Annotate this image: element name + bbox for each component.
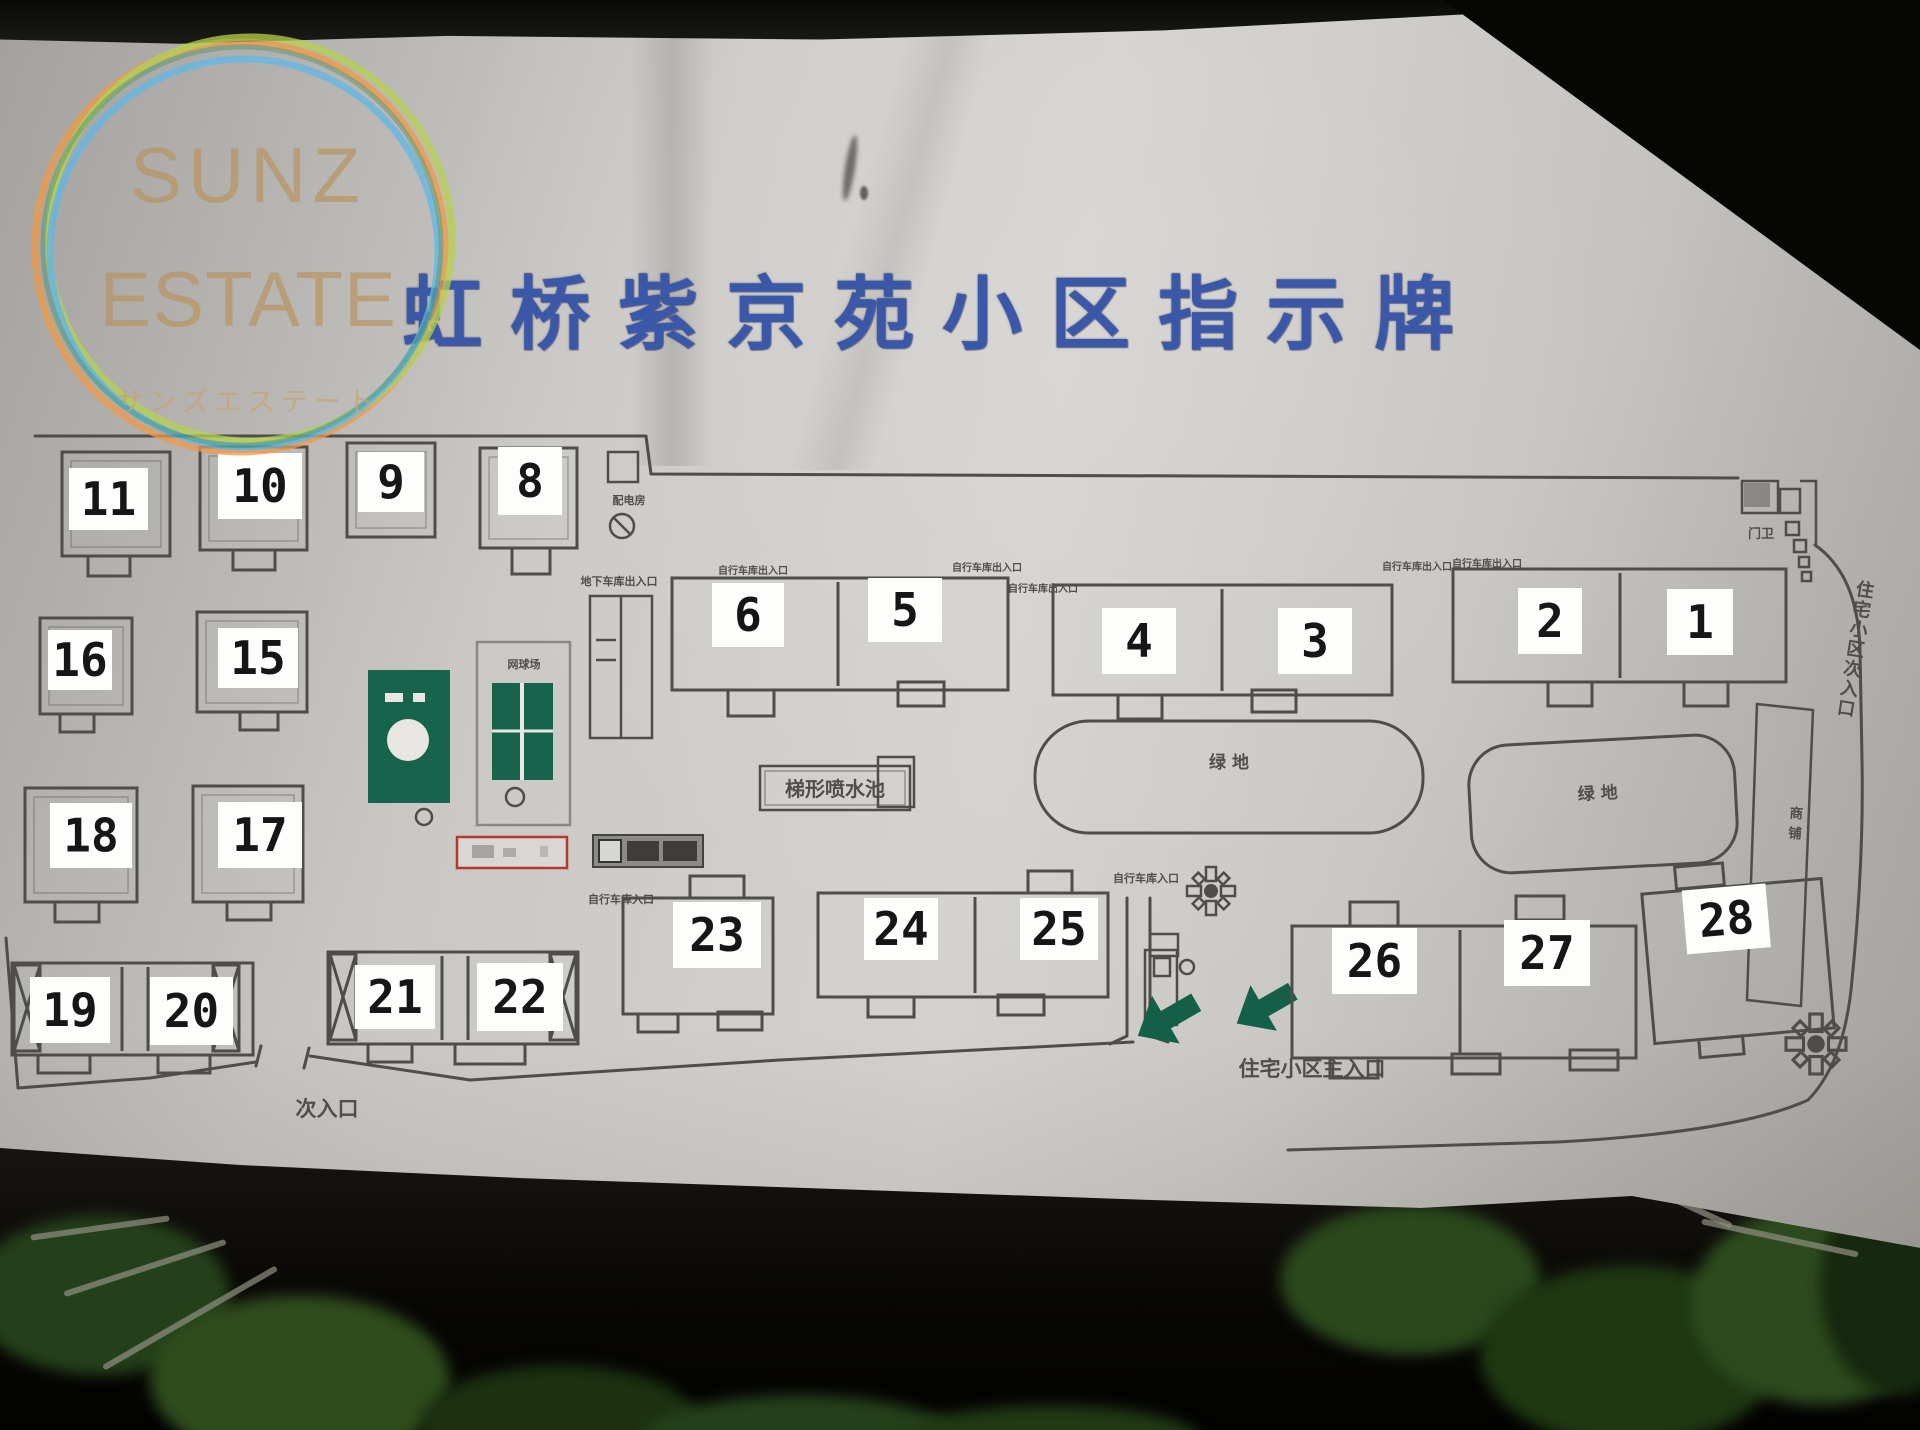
- flower-medallion: [1180, 860, 1242, 922]
- map-label: 地下车库出入口: [581, 574, 658, 588]
- map-label: 自行车库入口: [588, 892, 654, 906]
- map-label: 自行车库出入口: [1008, 582, 1078, 595]
- shop-strip: [1747, 704, 1813, 1006]
- garage-ramp: [590, 596, 652, 738]
- watermark-line1: SUNZ: [28, 130, 468, 221]
- svg-text:网球场: 网球场: [508, 657, 541, 671]
- building-number: 17: [232, 808, 287, 862]
- building-number: 8: [516, 454, 544, 508]
- svg-text:梯形喷水池: 梯形喷水池: [785, 777, 885, 801]
- svg-text:自行车库出入口: 自行车库出入口: [1008, 582, 1078, 595]
- building-22: 22: [477, 963, 563, 1031]
- map-label: 住宅小区主入口: [1239, 1057, 1386, 1081]
- svg-text:自行车库入口: 自行车库入口: [1113, 871, 1179, 885]
- building-number: 21: [367, 970, 422, 1024]
- sign-title: 虹桥紫京苑小区指示牌: [402, 250, 1482, 366]
- svg-text:次入口: 次入口: [296, 1097, 359, 1121]
- entrance-arrow: [1124, 978, 1210, 1059]
- map-label: 自行车库出入口: [718, 564, 788, 577]
- building-number: 25: [1031, 902, 1086, 956]
- building-18: 18: [25, 788, 137, 922]
- watermark-line2: ESTATE: [28, 254, 468, 345]
- building-number: 27: [1519, 926, 1574, 980]
- svg-text:地下车库出入口: 地下车库出入口: [581, 574, 658, 588]
- map-label: 自行车库入口: [1113, 871, 1179, 885]
- building-5: 5: [868, 578, 942, 642]
- svg-text:绿 地: 绿 地: [1209, 752, 1249, 773]
- building-number: 15: [230, 631, 285, 685]
- building-2: 2: [1453, 569, 1786, 706]
- side-entrance-vertical-label: 住宅小区次入口: [1836, 578, 1876, 721]
- building-20: 20: [150, 977, 233, 1045]
- building-number: 19: [42, 983, 97, 1037]
- map-label: 梯形喷水池: [760, 766, 910, 810]
- svg-text:自行车库出入口: 自行车库出入口: [1452, 557, 1522, 570]
- building-number: 22: [492, 970, 547, 1024]
- building-number: 6: [734, 588, 762, 642]
- legend-box: [593, 835, 703, 867]
- buildings-layer: 1110981615181719202122654321232425262728: [12, 443, 1836, 1078]
- building-6: 6: [672, 578, 1008, 716]
- flower-medallion: [1777, 1005, 1855, 1083]
- map-label: 绿 地: [1209, 752, 1249, 773]
- lawn-outline: [1467, 733, 1739, 875]
- svg-text:门卫: 门卫: [1748, 526, 1774, 542]
- svg-text:自行车库出入口: 自行车库出入口: [1382, 560, 1452, 573]
- watermark-logo: SUNZ ESTATE サンズエステート: [28, 22, 468, 482]
- map-label: 网球场: [508, 657, 541, 671]
- building-16: 16: [40, 618, 132, 732]
- building-25: 25: [1020, 898, 1098, 960]
- building-number: 16: [52, 633, 107, 687]
- map-label: 自行车库出入口: [1382, 560, 1452, 573]
- building-17: 17: [193, 786, 303, 920]
- building-number: 2: [1536, 594, 1564, 648]
- map-label: 门卫: [1748, 526, 1774, 542]
- lawn-outline: [1035, 721, 1423, 833]
- building-number: 20: [164, 984, 219, 1038]
- power-room: [608, 452, 638, 482]
- shop-strip-label: 商铺: [1788, 805, 1805, 843]
- clubhouse-block: [368, 670, 450, 825]
- watermark-line3: サンズエステート: [28, 380, 468, 419]
- building-number: 4: [1125, 614, 1153, 668]
- building-3: 3: [1278, 608, 1352, 674]
- photo-scene: 1110981615181719202122654321232425262728…: [0, 0, 1920, 1430]
- map-label: 配电房: [613, 493, 646, 507]
- svg-text:自行车库入口: 自行车库入口: [588, 892, 654, 906]
- building-15: 15: [197, 612, 307, 730]
- building-number: 1: [1686, 595, 1714, 649]
- svg-text:自行车库出入口: 自行车库出入口: [718, 564, 788, 577]
- building-number: 26: [1347, 934, 1402, 988]
- svg-text:配电房: 配电房: [613, 493, 646, 507]
- building-number: 3: [1301, 614, 1329, 668]
- building-number: 23: [689, 908, 744, 962]
- building-27: 27: [1504, 920, 1590, 986]
- svg-text:自行车库出入口: 自行车库出入口: [952, 561, 1022, 574]
- you-are-here-box: [457, 837, 567, 868]
- gate-main: [1150, 934, 1194, 976]
- building-8: 8: [480, 447, 577, 574]
- svg-text:绿 地: 绿 地: [1577, 782, 1618, 805]
- map-label: 绿 地: [1577, 782, 1618, 805]
- building-number: 24: [873, 902, 928, 956]
- entrance-arrow: [1223, 968, 1306, 1046]
- building-1: 1: [1667, 589, 1733, 655]
- map-label: 自行车库出入口: [1452, 557, 1522, 570]
- map-label: 自行车库出入口: [952, 561, 1022, 574]
- svg-text:住宅小区主入口: 住宅小区主入口: [1239, 1057, 1386, 1081]
- building-number: 5: [891, 583, 919, 637]
- green-spaces: [1035, 721, 1739, 875]
- building-number: 28: [1696, 890, 1756, 949]
- map-label: 次入口: [296, 1097, 359, 1121]
- building-number: 18: [63, 809, 118, 863]
